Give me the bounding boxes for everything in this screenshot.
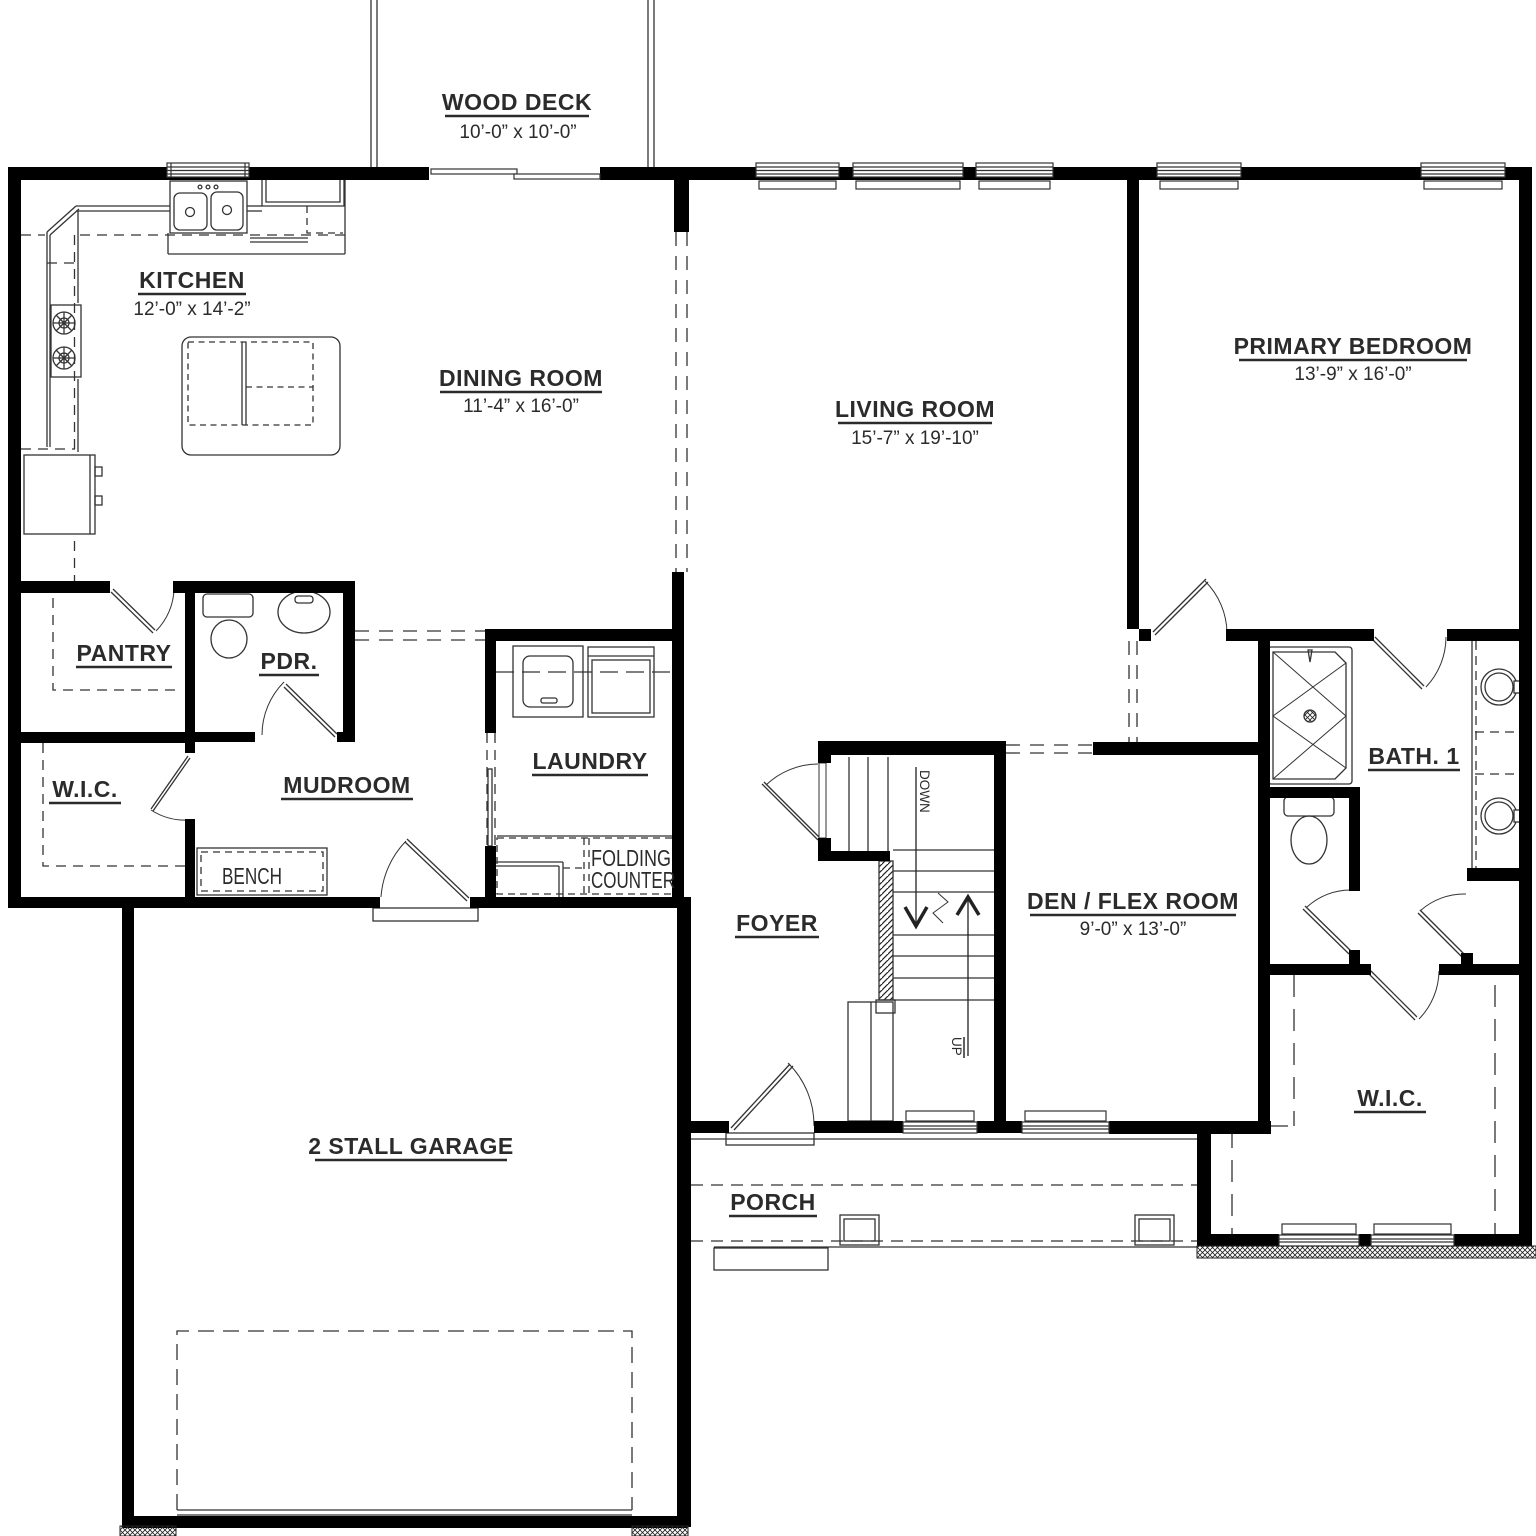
svg-text:12’-0” x 14’-2”: 12’-0” x 14’-2” <box>133 299 250 320</box>
svg-text:13’-9” x 16’-0”: 13’-9” x 16’-0” <box>1294 364 1411 385</box>
svg-text:9’-0” x 13’-0”: 9’-0” x 13’-0” <box>1080 919 1187 940</box>
svg-text:DEN / FLEX ROOM: DEN / FLEX ROOM <box>1027 888 1239 914</box>
svg-text:PANTRY: PANTRY <box>77 640 172 666</box>
svg-text:10’-0” x 10’-0”: 10’-0” x 10’-0” <box>459 122 576 143</box>
svg-text:15’-7” x 19’-10”: 15’-7” x 19’-10” <box>851 428 979 449</box>
svg-text:PDR.: PDR. <box>261 648 318 674</box>
svg-text:2 STALL GARAGE: 2 STALL GARAGE <box>308 1133 514 1159</box>
svg-text:W.I.C.: W.I.C. <box>1357 1085 1423 1111</box>
svg-text:DOWN: DOWN <box>917 770 932 813</box>
svg-text:BATH. 1: BATH. 1 <box>1368 743 1459 769</box>
svg-text:MUDROOM: MUDROOM <box>283 772 410 798</box>
svg-text:FOYER: FOYER <box>736 910 818 936</box>
svg-text:BENCH: BENCH <box>222 863 282 889</box>
svg-text:KITCHEN: KITCHEN <box>139 267 245 293</box>
svg-text:DINING ROOM: DINING ROOM <box>439 365 603 391</box>
svg-text:LIVING ROOM: LIVING ROOM <box>835 396 995 422</box>
svg-text:PRIMARY BEDROOM: PRIMARY BEDROOM <box>1234 333 1473 359</box>
svg-text:PORCH: PORCH <box>730 1189 816 1215</box>
svg-text:WOOD DECK: WOOD DECK <box>442 89 592 115</box>
svg-text:11’-4” x 16’-0”: 11’-4” x 16’-0” <box>463 396 579 417</box>
svg-text:W.I.C.: W.I.C. <box>52 776 118 802</box>
svg-text:UP: UP <box>949 1037 964 1056</box>
svg-text:COUNTER: COUNTER <box>591 867 675 893</box>
svg-text:LAUNDRY: LAUNDRY <box>532 748 647 774</box>
